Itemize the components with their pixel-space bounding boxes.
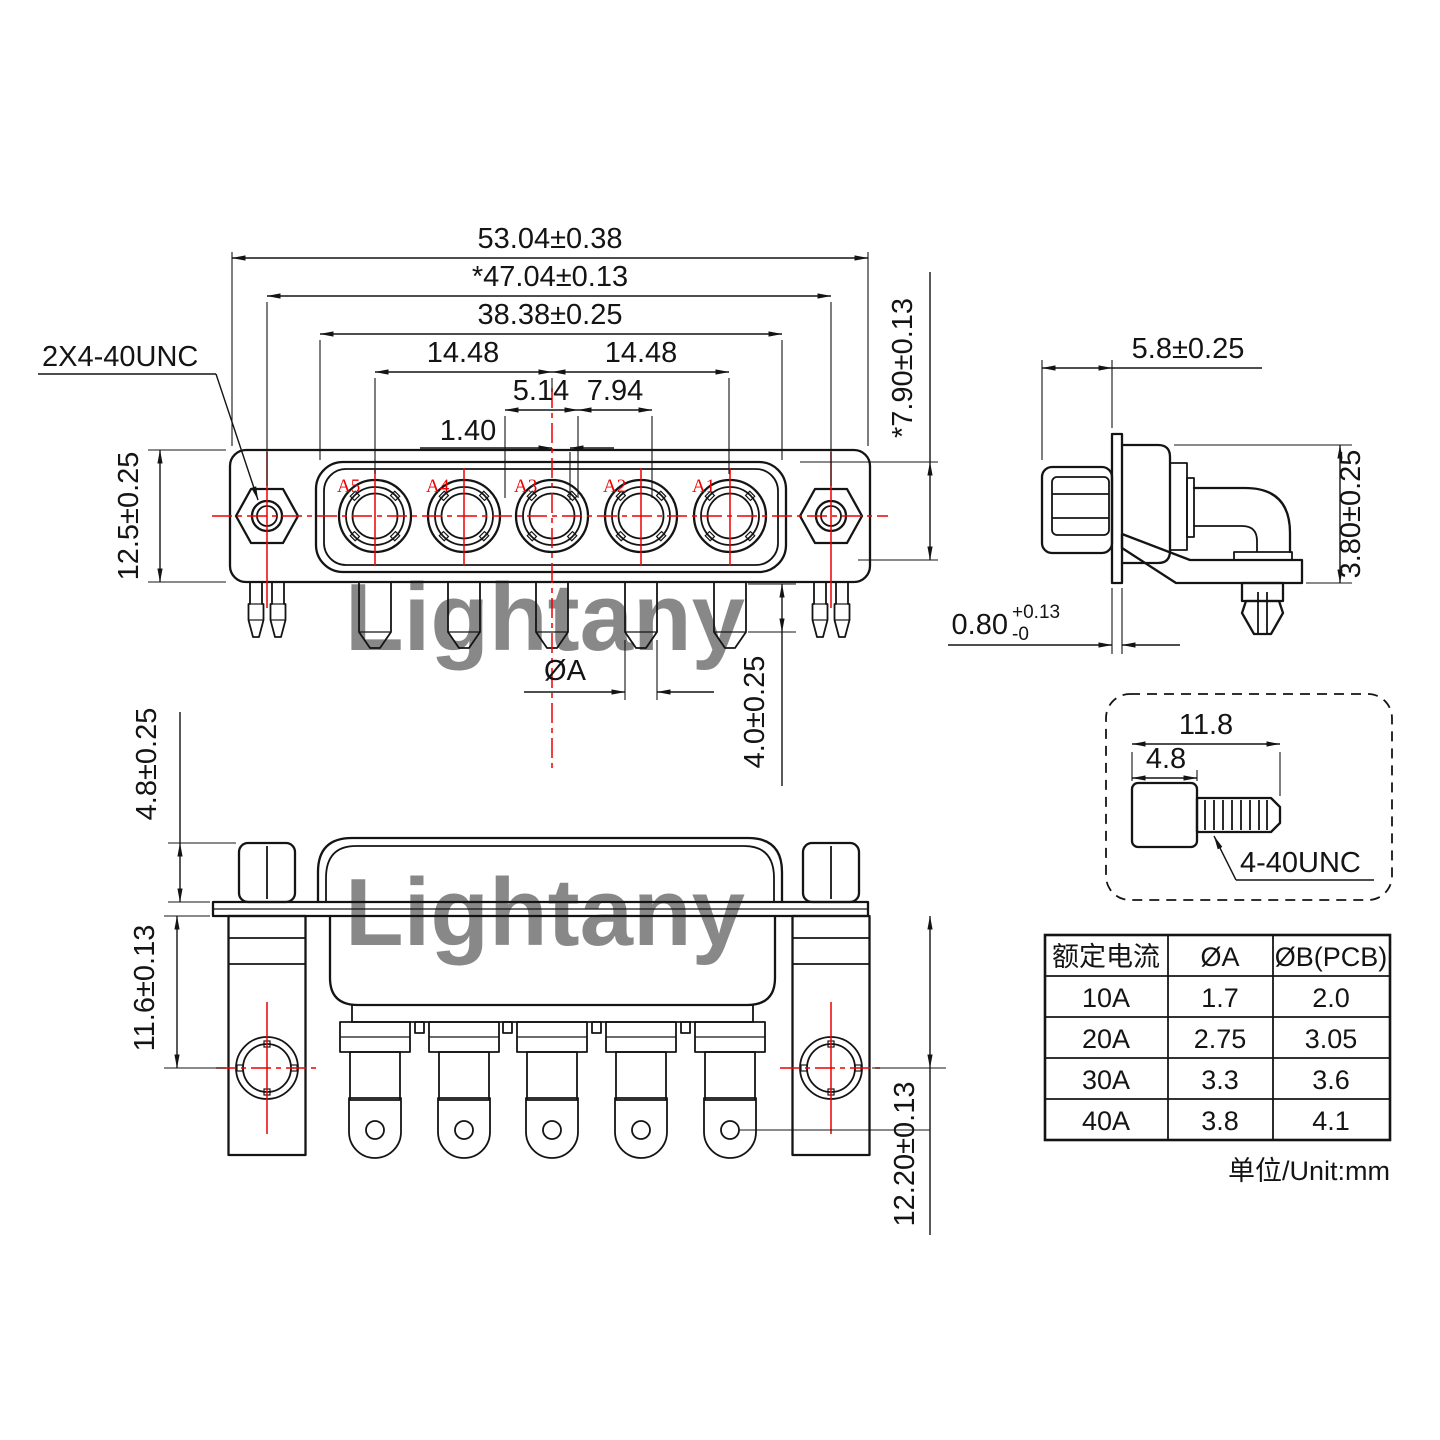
svg-text:4.1: 4.1 [1312,1106,1350,1136]
dim-front-depth: 5.8±0.25 [1042,333,1262,460]
svg-text:*47.04±0.13: *47.04±0.13 [472,261,628,293]
svg-text:20A: 20A [1082,1024,1130,1054]
technical-drawing-page: Lightany Lightany A5 A4 A3 A2 A1 53.04±0… [0,0,1440,1440]
contact-label-a5: A5 [337,476,360,497]
dim-flange-height: 12.5±0.25 [113,450,226,582]
svg-text:3.8: 3.8 [1201,1106,1239,1136]
svg-text:5.14: 5.14 [513,375,569,407]
thread-hatching [1205,800,1267,830]
svg-text:1.40: 1.40 [440,415,496,447]
svg-text:14.48: 14.48 [427,337,500,369]
table-row: 30A 3.3 3.6 [1082,1065,1350,1095]
svg-text:2.0: 2.0 [1312,983,1350,1013]
svg-text:3.80±0.25: 3.80±0.25 [1335,450,1367,579]
svg-text:10A: 10A [1082,983,1130,1013]
svg-text:4-40UNC: 4-40UNC [1240,847,1361,879]
table-header-dia-a: ØA [1200,942,1239,972]
svg-text:3.6: 3.6 [1312,1065,1350,1095]
svg-text:11.8: 11.8 [1179,709,1233,741]
svg-text:3.3: 3.3 [1201,1065,1239,1095]
svg-text:38.38±0.25: 38.38±0.25 [478,299,623,331]
table-header-dia-b: ØB(PCB) [1275,942,1388,972]
thread-callout: 2X4-40UNC [38,341,258,500]
dim-bracket-height: 3.80±0.25 [1174,445,1367,583]
svg-text:4.8: 4.8 [1146,743,1186,775]
table-header-current: 额定电流 [1052,942,1160,972]
dim-standoff-height: 4.8±0.25 [131,708,236,902]
svg-text:14.48: 14.48 [605,337,678,369]
front-view: A5 A4 A3 A2 A1 53.04±0.38 *47.04±0.13 38… [38,223,938,786]
svg-text:2X4-40UNC: 2X4-40UNC [42,341,198,373]
unit-note: 单位/Unit:mm [1228,1156,1390,1186]
svg-text:5.8±0.25: 5.8±0.25 [1132,333,1245,365]
svg-text:12.20±0.13: 12.20±0.13 [889,1082,921,1227]
screw-detail: 11.8 4.8 4-40UNC [1106,694,1392,900]
bottom-view: 4.8±0.25 11.6±0.13 12.20±0.13 [129,708,946,1235]
svg-text:53.04±0.38: 53.04±0.38 [478,223,623,255]
drawing-canvas: Lightany Lightany A5 A4 A3 A2 A1 53.04±0… [0,0,1440,1440]
table-row: 20A 2.75 3.05 [1082,1024,1357,1054]
svg-text:11.6±0.13: 11.6±0.13 [129,925,161,1052]
dim-mount-width: *47.04±0.13 [267,261,831,486]
spec-table: 额定电流 ØA ØB(PCB) 10A 1.7 2.0 20A 2.75 3.0… [1045,935,1390,1186]
svg-text:2.75: 2.75 [1194,1024,1247,1054]
svg-text:7.94: 7.94 [587,375,643,407]
table-row: 10A 1.7 2.0 [1082,983,1350,1013]
svg-text:1.7: 1.7 [1201,983,1239,1013]
svg-text:30A: 30A [1082,1065,1130,1095]
dim-flange-thickness: 0.80 +0.13 -0 [948,588,1180,654]
dim-screw-head: 4.8 [1132,743,1197,781]
contact-label-a2: A2 [603,476,626,497]
contact-label-a3: A3 [514,476,537,497]
svg-text:+0.13: +0.13 [1012,602,1060,623]
svg-text:4.8±0.25: 4.8±0.25 [131,708,163,821]
svg-text:*7.90±0.13: *7.90±0.13 [887,298,919,438]
screw-thread-callout: 4-40UNC [1214,836,1374,880]
svg-text:3.05: 3.05 [1305,1024,1358,1054]
svg-text:12.5±0.25: 12.5±0.25 [113,452,145,581]
svg-text:-0: -0 [1012,624,1029,645]
dim-hole-offset: 11.6±0.13 [129,916,226,1068]
svg-text:ØA: ØA [544,655,587,687]
dim-pin-length: 4.0±0.25 [739,584,796,786]
side-view: 5.8±0.25 3.80±0.25 0.80 +0.13 -0 [948,333,1367,654]
watermark-bottom: Lightany [345,859,745,966]
svg-text:4.0±0.25: 4.0±0.25 [739,656,771,769]
svg-text:40A: 40A [1082,1106,1130,1136]
svg-text:0.80: 0.80 [952,609,1008,641]
contact-label-a1: A1 [692,476,715,497]
contact-label-a4: A4 [426,476,450,497]
table-row: 40A 3.8 4.1 [1082,1106,1350,1136]
